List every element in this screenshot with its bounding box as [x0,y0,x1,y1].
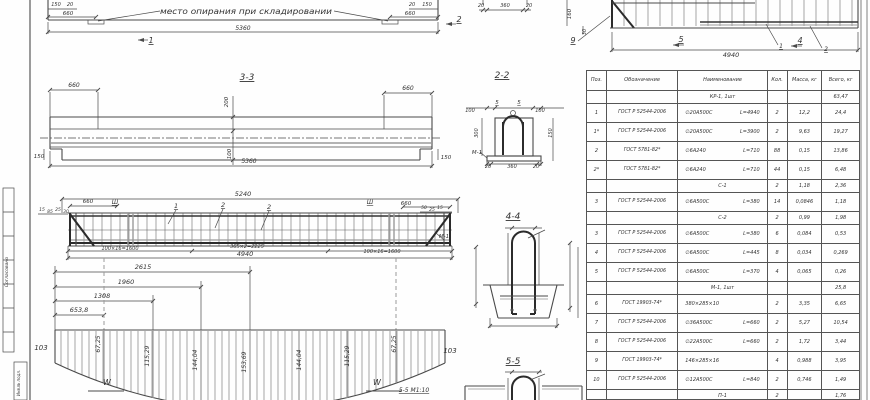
cell-length: L=840 [743,378,760,383]
cell-length: L=660 [743,321,760,326]
cell-pos: 7 [587,314,607,332]
cell-spec: ∅12А500С [685,378,712,383]
dim-label: Инв.№ подл. [16,370,21,396]
spec-item-row: 1*ГОСТ Р 52544-2006∅20А500СL=390029,6319… [587,123,859,142]
dim-label: 30 [63,209,69,215]
dim-label: 100×16=1600 [101,246,138,252]
cell-pos [587,180,607,192]
view-storage-scheme: 15020660место опирания при складировании… [46,0,462,45]
cell-pos: 6 [587,295,607,313]
cell-name: ∅6А500СL=380 [678,193,767,211]
dim-label: 150 [422,2,432,8]
dim-label: 1 [779,43,783,50]
cell-mass [788,282,823,294]
dim-label: 1 [148,36,153,45]
cell-name: ∅20А500СL=4940 [678,104,767,122]
dim-label: Согласовано [4,257,10,287]
dim-label: 144,04 [296,349,303,370]
cell-name: ∅6А240L=710 [678,161,767,179]
cell-length: L=710 [743,149,760,154]
dim-label: 2 [221,201,225,209]
cell-length: L=380 [743,232,760,237]
view-section-2-2: 2-210055100300150М-12036020 [465,71,564,170]
cell-qty [768,91,788,103]
cell-spec: ∅20А500С [685,111,712,116]
cell-name: ∅12А500СL=840 [678,371,767,389]
cell-mass: 1,18 [788,180,823,192]
cell-total: 0,26 [822,263,859,281]
cell-pos: 4 [587,244,607,262]
cell-total: 6,65 [822,295,859,313]
view-cage-plan: 16030954940142 [567,0,860,59]
dim-label: 67,25 [95,335,102,352]
cell-spec: ∅6А500С [685,270,709,275]
cell-spec: ∅6А500С [685,251,709,256]
dim-label: место опирания при складировании [160,7,332,16]
cell-pos: 3 [587,225,607,243]
dim-label: 360 [507,164,517,170]
spec-group-row: КР-1, 1шт63,47 [587,91,859,104]
cell-total: 1,98 [822,212,859,224]
cell-total: 3,95 [822,352,859,370]
dim-label: 9 [570,36,575,45]
cell-name: С-2 [678,212,767,224]
cell-pos: 1* [587,123,607,141]
dim-label: М-1 [472,150,482,156]
spec-item-row: 6ГОСТ 19903-74*380×285×1023,356,65 [587,295,859,314]
cell-pos: 1 [587,104,607,122]
cell-qty: 88 [768,142,788,160]
dim-label: 103 [34,344,47,352]
cell-spec: ∅20А500С [685,130,712,135]
view-cage-elevation: 5240660ШШ66012215852530502515М-1100×16=1… [38,190,460,260]
cell-pos: 9 [587,352,607,370]
dim-label: 30 [582,29,588,35]
cell-qty [768,282,788,294]
cell-doc [607,180,678,192]
dim-label: 660 [402,85,414,92]
cell-spec: ∅6А500С [685,200,709,205]
cell-qty: 4 [768,352,788,370]
cell-qty: 44 [768,161,788,179]
spec-item-row: 7ГОСТ Р 52544-2006∅36А500СL=66025,2710,5… [587,314,859,333]
cell-doc: ГОСТ Р 52544-2006 [607,225,678,243]
dim-label: 5360 [235,25,250,32]
dim-label: 660 [405,11,416,17]
cell-total: 24,4 [822,104,859,122]
dim-label: Ш [112,199,119,206]
cell-total: 25,8 [822,282,859,294]
cell-qty: 2 [768,295,788,313]
cell-name: ∅20А500СL=3900 [678,123,767,141]
cell-spec: ∅6А240 [685,149,706,154]
view-section-3-3: 3-36606602001005360150150 [34,73,452,168]
cell-mass: 5,27 [788,314,823,332]
dim-label: 20 [485,164,491,170]
cell-total: 1,49 [822,371,859,389]
cell-pos [587,91,607,103]
cell-mass: 9,63 [788,123,823,141]
col-header-qty: Кол. [768,71,788,90]
cell-doc [607,212,678,224]
col-header-name: Наименование [678,71,767,90]
cell-length: L=710 [743,168,760,173]
dim-label: 2-2 [495,71,510,81]
dim-label: 4-4 [506,212,521,222]
cell-mass: 0,746 [788,371,823,389]
dim-label: 1 [174,202,178,210]
dim-label: 5-5 [506,357,521,367]
cell-name: П-1 [678,390,767,400]
spec-group-row: П-121,76 [587,390,859,400]
cell-qty: 2 [768,314,788,332]
cell-qty: 2 [768,390,788,400]
dim-label: 1308 [94,292,111,300]
dim-label: 100 [535,108,545,114]
dim-label: 85 [47,209,53,215]
dim-label: 660 [401,201,412,207]
cell-total: 2,36 [822,180,859,192]
cell-name: 146×285×16 [678,352,767,370]
cell-doc: ГОСТ Р 52544-2006 [607,193,678,211]
cell-qty: 2 [768,123,788,141]
dim-label: W [373,378,382,387]
cell-mass [788,390,823,400]
col-header-doc: Обозначение [607,71,678,90]
spec-group-row: М-1, 1шт25,8 [587,282,859,295]
cell-doc: ГОСТ 19903-74* [607,352,678,370]
cell-name: ∅22А500СL=660 [678,333,767,351]
cell-mass: 1,72 [788,333,823,351]
cell-qty: 2 [768,180,788,192]
dim-label: 50 [421,205,427,211]
spec-item-row: 2ГОСТ 5781-82*∅6А240L=710880,1513,86 [587,142,859,161]
cell-name: М-1, 1шт [678,282,767,294]
cell-name: ∅6А500СL=380 [678,225,767,243]
cell-total: 0,269 [822,244,859,262]
cell-mass: 0,065 [788,263,823,281]
dim-label: 5 [678,35,683,44]
dim-label: 5-5 М1:10 [399,387,430,394]
dim-label: 103 [443,347,456,355]
dim-label: 15 [437,205,443,211]
cell-spec: ∅22А500С [685,340,712,345]
spec-item-row: 1ГОСТ Р 52544-2006∅20А500СL=4940212,224,… [587,104,859,123]
dim-label: 150 [441,155,452,161]
cell-mass: 0,0846 [788,193,823,211]
cell-length: L=445 [743,251,760,256]
dim-label: 115,29 [344,345,351,366]
cell-spec: ∅36А500С [685,321,712,326]
cell-doc: ГОСТ 5781-82* [607,161,678,179]
dim-label: 660 [68,82,80,89]
cell-mass: 0,15 [788,142,823,160]
cell-doc [607,390,678,400]
cell-length: L=380 [743,200,760,205]
cell-spec: 146×285×16 [685,359,719,364]
dim-label: 4940 [723,51,740,59]
cell-mass: 0,15 [788,161,823,179]
cell-total: 3,44 [822,333,859,351]
cell-doc: ГОСТ 19903-74* [607,295,678,313]
spec-table-rows: КР-1, 1шт63,471ГОСТ Р 52544-2006∅20А500С… [587,91,859,400]
cell-name: С-1 [678,180,767,192]
cell-pos: 2* [587,161,607,179]
dim-label: 100×16=1600 [363,249,400,255]
drawing-sheet: СогласованоИнв.№ подл. 15020660место опи… [0,0,870,400]
cell-total: 13,86 [822,142,859,160]
cell-total: 1,76 [822,390,859,400]
cell-total: 10,54 [822,314,859,332]
dim-label: 20 [533,164,539,170]
cell-doc: ГОСТ Р 52544-2006 [607,263,678,281]
cell-qty: 2 [768,333,788,351]
cell-mass: 0,034 [788,244,823,262]
dim-label: 4940 [237,250,254,258]
spec-item-row: 8ГОСТ Р 52544-2006∅22А500СL=66021,723,44 [587,333,859,352]
dim-label: 100 [465,108,475,114]
cell-mass [788,91,823,103]
cell-total: 0,53 [822,225,859,243]
dim-label: Ш [367,199,374,206]
dim-label: 25 [55,207,61,213]
dim-label: 150 [548,128,554,138]
cell-spec: ∅6А500С [685,232,709,237]
col-header-total: Всего, кг [822,71,859,90]
cell-name: ∅6А240L=710 [678,142,767,160]
cell-doc: ГОСТ Р 52544-2006 [607,123,678,141]
dim-label: 3-3 [240,73,255,83]
dim-label: 2 [267,203,271,211]
col-header-pos: Поз. [587,71,607,90]
dim-label: 2615 [135,263,152,271]
cell-mass: 0,99 [788,212,823,224]
dim-label: W [103,378,112,387]
dim-label: 150 [34,154,45,160]
cell-doc: ГОСТ Р 52544-2006 [607,371,678,389]
cell-pos: 3 [587,193,607,211]
dim-label: 660 [63,11,74,17]
col-header-mass: Масса, кг [788,71,823,90]
dim-label: 115,29 [144,345,151,366]
view-section-5-5: 5-5 [465,357,582,400]
dim-label: 150 [51,2,61,8]
dim-label: 20 [67,2,73,8]
dim-label: 5 [495,100,499,106]
spec-item-row: 2*ГОСТ 5781-82*∅6А240L=710440,156,48 [587,161,859,180]
cell-doc: ГОСТ Р 52544-2006 [607,104,678,122]
cell-doc [607,91,678,103]
spec-item-row: 3ГОСТ Р 52544-2006∅6А500СL=38060,0840,53 [587,225,859,244]
cell-spec: 380×285×10 [685,302,719,307]
cell-pos: 10 [587,371,607,389]
dim-label: 360 [500,3,510,9]
cell-pos [587,390,607,400]
cell-total: 19,27 [822,123,859,141]
dim-label: М-1 [439,234,449,240]
cell-mass: 12,2 [788,104,823,122]
cell-mass: 0,988 [788,352,823,370]
cell-doc: ГОСТ 5781-82* [607,142,678,160]
cell-length: L=660 [743,340,760,345]
cell-doc: ГОСТ Р 52544-2006 [607,333,678,351]
cell-pos: 5 [587,263,607,281]
cell-qty: 14 [768,193,788,211]
cell-name: ∅36А500СL=660 [678,314,767,332]
spec-table: Поз. Обозначение Наименование Кол. Масса… [586,70,860,400]
cell-name: ∅6А500СL=445 [678,244,767,262]
dim-label: 20 [409,2,415,8]
cell-qty: 2 [768,104,788,122]
cell-name: ∅6А500СL=370 [678,263,767,281]
dim-label: 153,69 [241,351,248,372]
cell-name: КР-1, 1шт [678,91,767,103]
spec-item-row: 3ГОСТ Р 52544-2006∅6А500СL=380140,08461,… [587,193,859,212]
cell-spec: ∅6А240 [685,168,706,173]
dim-label: 20 [478,3,484,9]
cell-mass: 3,35 [788,295,823,313]
cell-doc: ГОСТ Р 52544-2006 [607,314,678,332]
cell-qty: 6 [768,225,788,243]
cell-pos: 8 [587,333,607,351]
dim-label: 67,25 [391,335,398,352]
dim-label: 660 [83,199,94,205]
cell-qty: 2 [768,371,788,389]
cell-length: L=4940 [740,111,760,116]
cell-total: 1,18 [822,193,859,211]
dim-label: 4 [797,36,802,45]
dim-label: 20 [526,3,532,9]
dim-label: 25 [429,207,435,213]
dim-label: 5240 [235,190,252,198]
cell-length: L=370 [743,270,760,275]
cage-elevation-stirrups [84,213,435,246]
dim-label: 1960 [118,278,135,286]
cell-qty: 2 [768,212,788,224]
view-section-4-4: 4-4 [474,212,578,328]
cell-pos [587,282,607,294]
cell-doc: ГОСТ Р 52544-2006 [607,244,678,262]
spec-item-row: 4ГОСТ Р 52544-2006∅6А500СL=44580,0340,26… [587,244,859,263]
dim-label: 15 [39,207,45,213]
cell-total: 6,48 [822,161,859,179]
view-deflection-diagram: 261519601308653,810310367,25115,29144,04… [34,258,456,400]
cell-doc [607,282,678,294]
dim-label: 2 [824,46,828,53]
dim-label: 300 [474,128,480,138]
dim-label: 144,04 [192,349,199,370]
spec-item-row: 5ГОСТ Р 52544-2006∅6А500СL=37040,0650,26 [587,263,859,282]
cell-total: 63,47 [822,91,859,103]
cell-pos: 2 [587,142,607,160]
cell-pos [587,212,607,224]
spec-item-row: 10ГОСТ Р 52544-2006∅12А500СL=84020,7461,… [587,371,859,390]
dim-label: 100 [227,148,233,159]
view-top-section: 2036020 [478,0,532,12]
cell-mass: 0,084 [788,225,823,243]
cell-qty: 8 [768,244,788,262]
dim-label: 5360 [241,158,256,165]
spec-table-header: Поз. Обозначение Наименование Кол. Масса… [587,71,859,91]
dim-label: 160 [567,8,573,19]
dim-label: 200 [224,96,230,107]
cell-name: 380×285×10 [678,295,767,313]
spec-group-row: С-220,991,98 [587,212,859,225]
cell-length: L=3900 [740,130,760,135]
spec-item-row: 9ГОСТ 19903-74*146×285×1640,9883,95 [587,352,859,371]
dim-label: 5 [517,100,521,106]
spec-group-row: С-121,182,36 [587,180,859,193]
dim-label: 2 [456,15,461,24]
dim-label: 653,8 [70,306,89,314]
cell-qty: 4 [768,263,788,281]
